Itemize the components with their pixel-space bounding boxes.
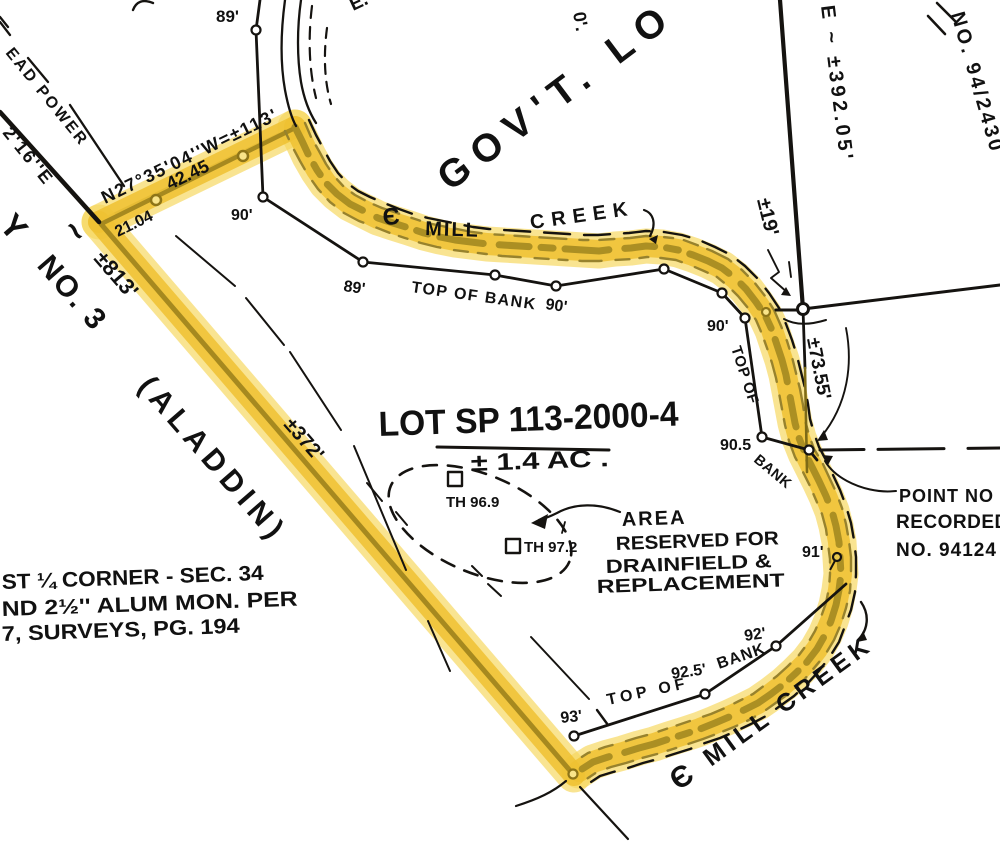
svg-text:90.5: 90.5	[720, 437, 751, 454]
svg-text:89': 89'	[342, 278, 366, 298]
svg-text:NO. 94124: NO. 94124	[896, 540, 997, 561]
svg-text:90': 90'	[707, 318, 729, 335]
svg-text:MILL: MILL	[425, 218, 480, 242]
svg-text:93': 93'	[560, 708, 583, 727]
svg-text:± 1.4 AC .: ± 1.4 AC .	[470, 445, 609, 477]
svg-text:TH 96.9: TH 96.9	[446, 494, 499, 511]
svg-text:91': 91'	[802, 544, 824, 561]
svg-text:0'.: 0'.	[569, 10, 592, 32]
svg-text:TH 97.2: TH 97.2	[524, 539, 577, 556]
svg-text:90': 90'	[231, 207, 253, 224]
svg-text:RECORDED: RECORDED	[896, 512, 1000, 533]
svg-text:AREA: AREA	[621, 507, 686, 531]
svg-text:90': 90'	[544, 296, 568, 316]
svg-text:Є: Є	[382, 203, 400, 231]
svg-text:POINT NO: POINT NO	[899, 486, 994, 506]
svg-text:89': 89'	[216, 7, 239, 26]
